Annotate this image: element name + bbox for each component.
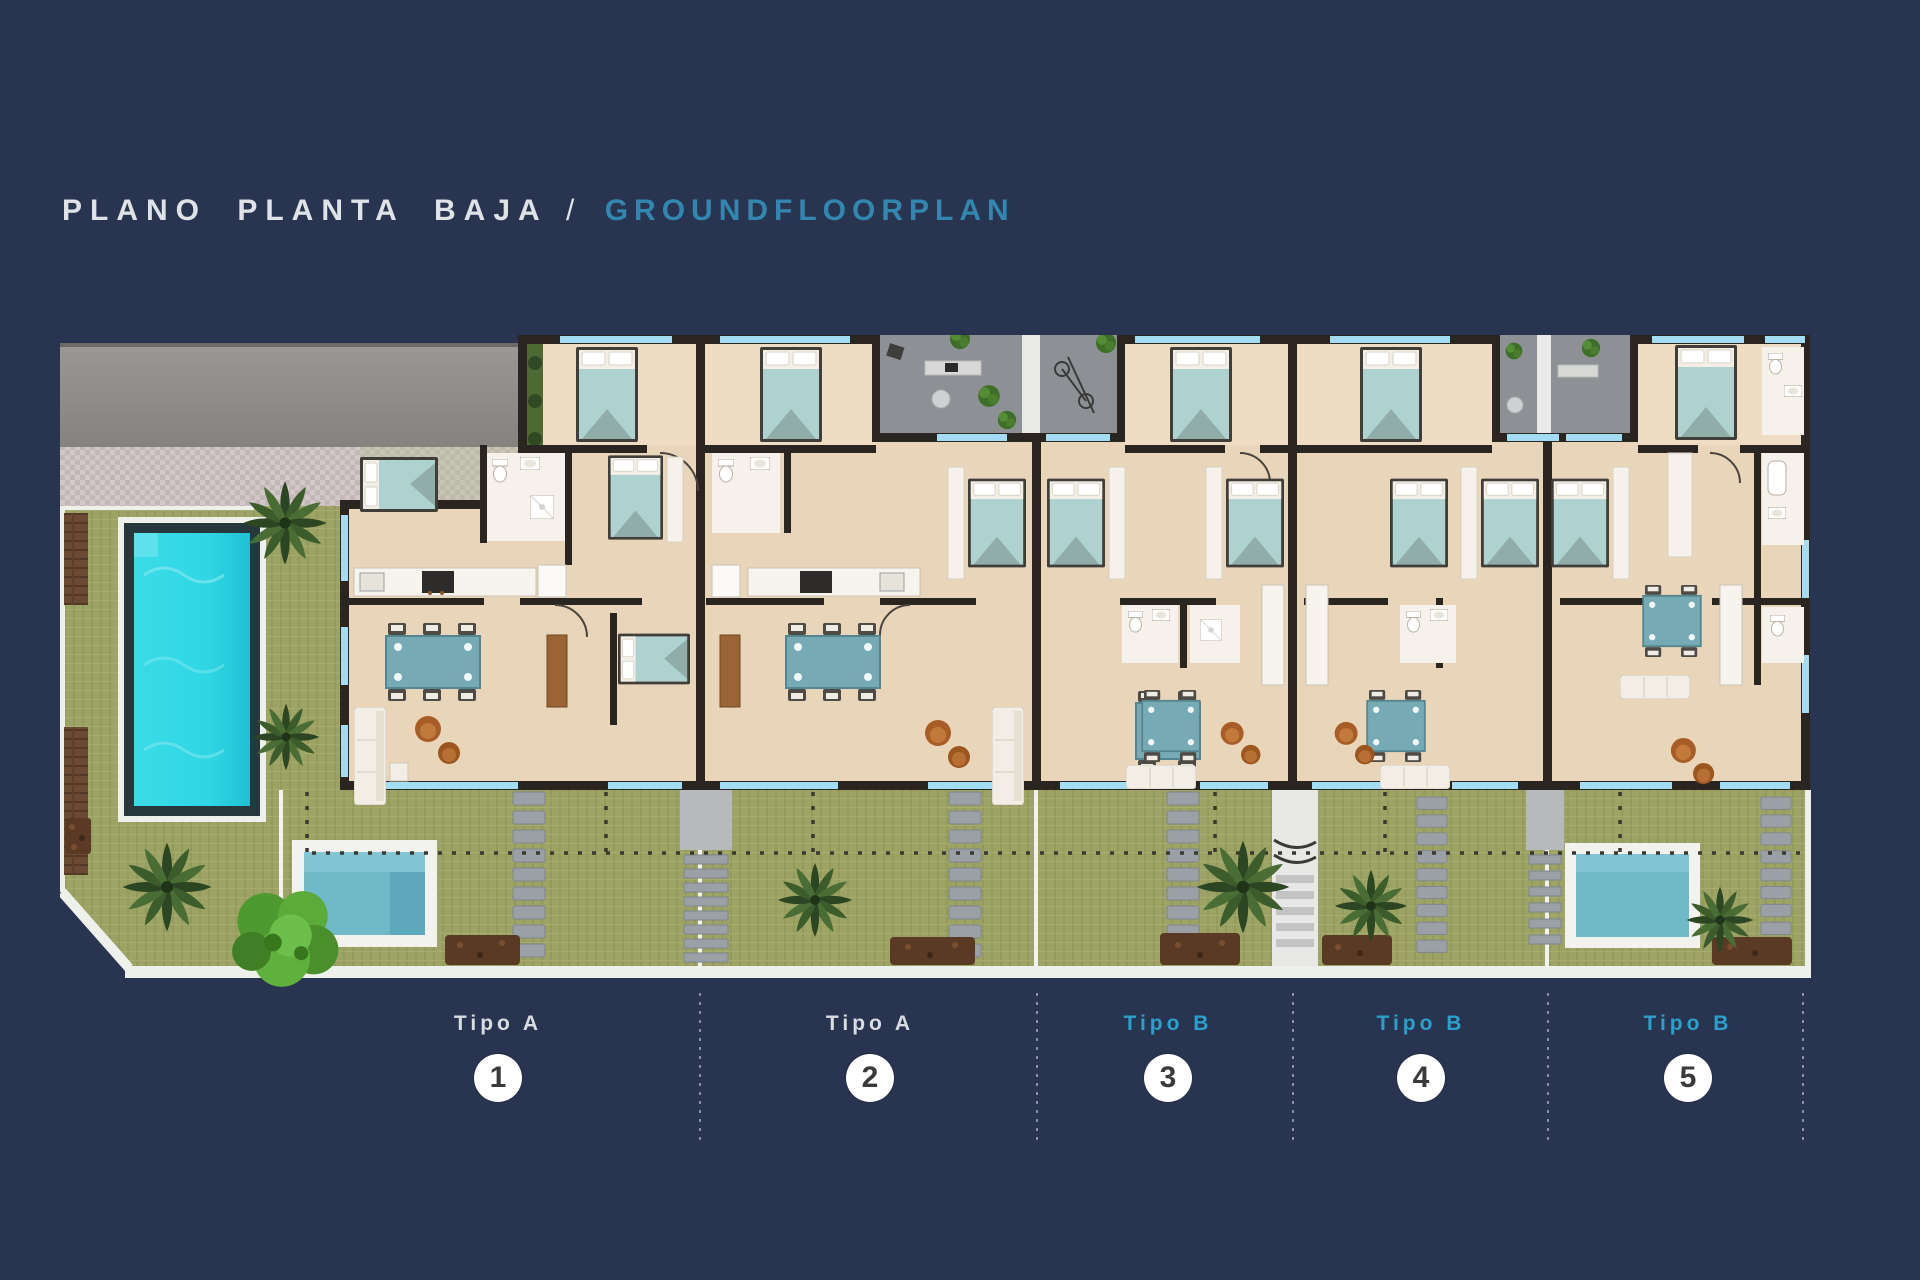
garden-stairs [1417, 797, 1447, 952]
title-english: GROUNDFLOORPLAN [605, 194, 1015, 227]
garden-stairs [513, 792, 545, 957]
title-spanish: PLANO PLANTA BAJA [62, 194, 548, 227]
page-title: PLANO PLANTA BAJA / GROUNDFLOORPLAN [62, 194, 1015, 228]
unit-label-3: Tipo B 3 [1088, 1012, 1248, 1102]
unit-type-label: Tipo B [1088, 1012, 1248, 1036]
garden-stairs [1167, 792, 1199, 957]
label-divider [1292, 993, 1294, 1143]
unit-number-badge: 2 [846, 1054, 894, 1102]
label-divider [1802, 993, 1804, 1143]
label-divider [1036, 993, 1038, 1143]
unit-type-label: Tipo A [790, 1012, 950, 1036]
floor-plan-image [60, 335, 1815, 995]
unit-type-label: Tipo A [418, 1012, 578, 1036]
title-separator: / [566, 194, 582, 227]
page: { "header": { "title_primary": "PLANO PL… [0, 0, 1920, 1280]
shared-walkway-2 [1272, 790, 1318, 966]
courtyard-patio-2 [1492, 335, 1638, 442]
main-pool [118, 517, 266, 822]
driveway [60, 343, 522, 447]
courtyard-patio-1 [872, 335, 1125, 442]
label-divider [699, 993, 701, 1143]
unit-label-4: Tipo B 4 [1341, 1012, 1501, 1102]
label-divider [1547, 993, 1549, 1143]
unit-number-badge: 3 [1144, 1054, 1192, 1102]
kitchen-counter [354, 565, 566, 597]
unit-number-badge: 1 [474, 1054, 522, 1102]
unit-label-2: Tipo A 2 [790, 1012, 950, 1102]
plunge-pool-2 [1565, 843, 1700, 948]
ground-floor-plan [60, 335, 1815, 995]
mosaic-path [60, 447, 522, 506]
garden-stairs [1761, 797, 1791, 952]
unit-label-5: Tipo B 5 [1608, 1012, 1768, 1102]
unit-type-label: Tipo B [1608, 1012, 1768, 1036]
unit-number-badge: 5 [1664, 1054, 1712, 1102]
mulch-bed [65, 818, 91, 854]
unit-type-label: Tipo B [1341, 1012, 1501, 1036]
garden-stairs [949, 792, 981, 957]
unit-label-1: Tipo A 1 [418, 1012, 578, 1102]
unit-number-badge: 4 [1397, 1054, 1445, 1102]
